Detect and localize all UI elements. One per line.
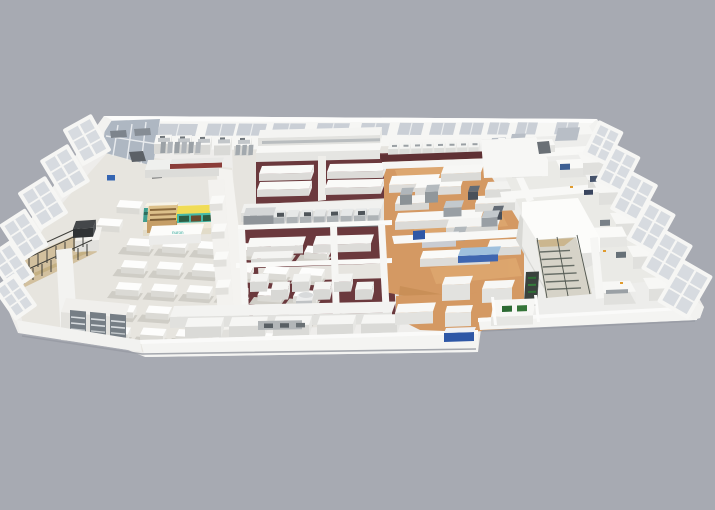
svg-text:nuron: nuron [172, 230, 184, 235]
